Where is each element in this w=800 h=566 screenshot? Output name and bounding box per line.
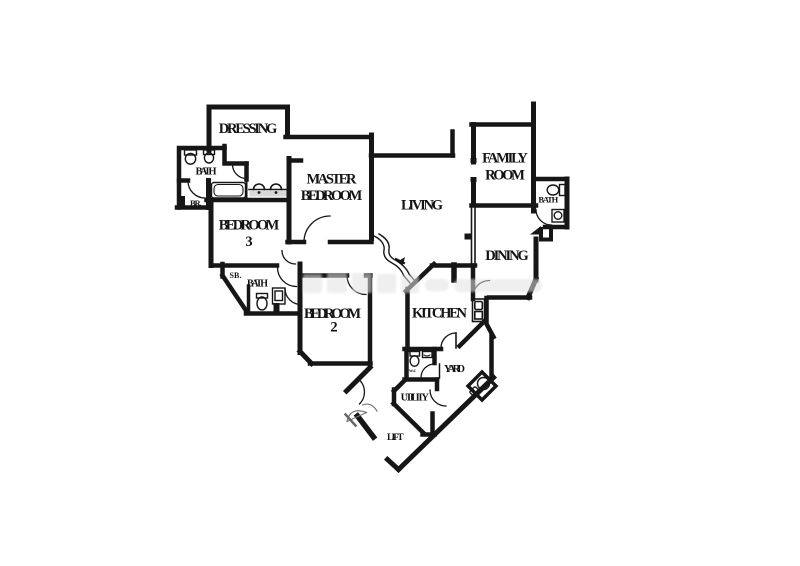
- svg-text:UTILITY: UTILITY: [401, 393, 430, 404]
- svg-text:BEDROOM: BEDROOM: [301, 188, 363, 204]
- svg-text:KITCHEN: KITCHEN: [412, 306, 468, 322]
- svg-text:DRESSING: DRESSING: [219, 121, 278, 137]
- svg-text:SB.: SB.: [230, 271, 242, 280]
- svg-text:w.c: w.c: [409, 368, 417, 374]
- svg-text:BR.: BR.: [190, 198, 202, 208]
- svg-text:BEDROOM: BEDROOM: [219, 218, 280, 234]
- svg-text:2: 2: [330, 320, 337, 336]
- svg-text:FAMILY: FAMILY: [482, 151, 528, 167]
- svg-text:YARD: YARD: [444, 364, 465, 375]
- svg-text:LIFT: LIFT: [387, 433, 404, 443]
- svg-text:BATH: BATH: [196, 167, 217, 178]
- svg-text:MASTER: MASTER: [307, 172, 358, 188]
- svg-text:3: 3: [245, 234, 252, 250]
- svg-text:DINING: DINING: [485, 248, 529, 264]
- svg-text:BATH: BATH: [247, 279, 268, 290]
- svg-text:BATH: BATH: [538, 195, 558, 205]
- svg-text:LIVING: LIVING: [401, 198, 443, 214]
- svg-text:ROOM: ROOM: [485, 168, 525, 184]
